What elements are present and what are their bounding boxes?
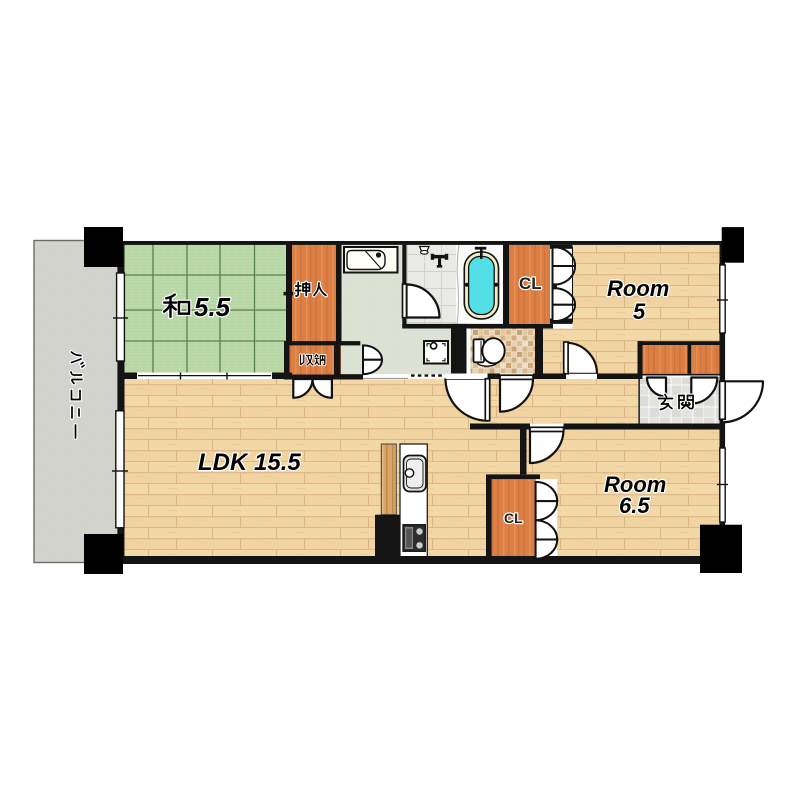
svg-text:5: 5 (633, 299, 646, 324)
svg-text:Room: Room (607, 276, 669, 301)
svg-text:CL: CL (504, 510, 523, 526)
svg-text:6.5: 6.5 (619, 493, 650, 518)
svg-text:5.5: 5.5 (194, 292, 231, 322)
svg-text:LDK 15.5: LDK 15.5 (198, 449, 301, 476)
svg-text:CL: CL (519, 274, 542, 293)
